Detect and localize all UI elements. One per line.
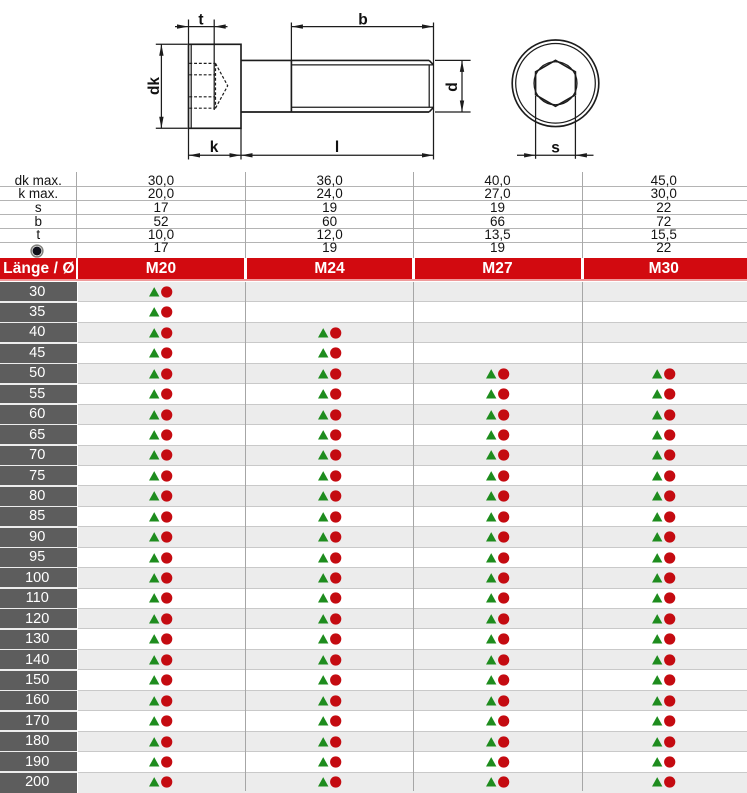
svg-text:k: k: [210, 139, 219, 156]
svg-text:l: l: [335, 139, 339, 156]
svg-text:dk: dk: [146, 77, 163, 95]
svg-text:d: d: [444, 82, 461, 91]
svg-text:t: t: [198, 12, 203, 29]
svg-text:s: s: [551, 139, 560, 156]
svg-text:b: b: [358, 12, 367, 29]
